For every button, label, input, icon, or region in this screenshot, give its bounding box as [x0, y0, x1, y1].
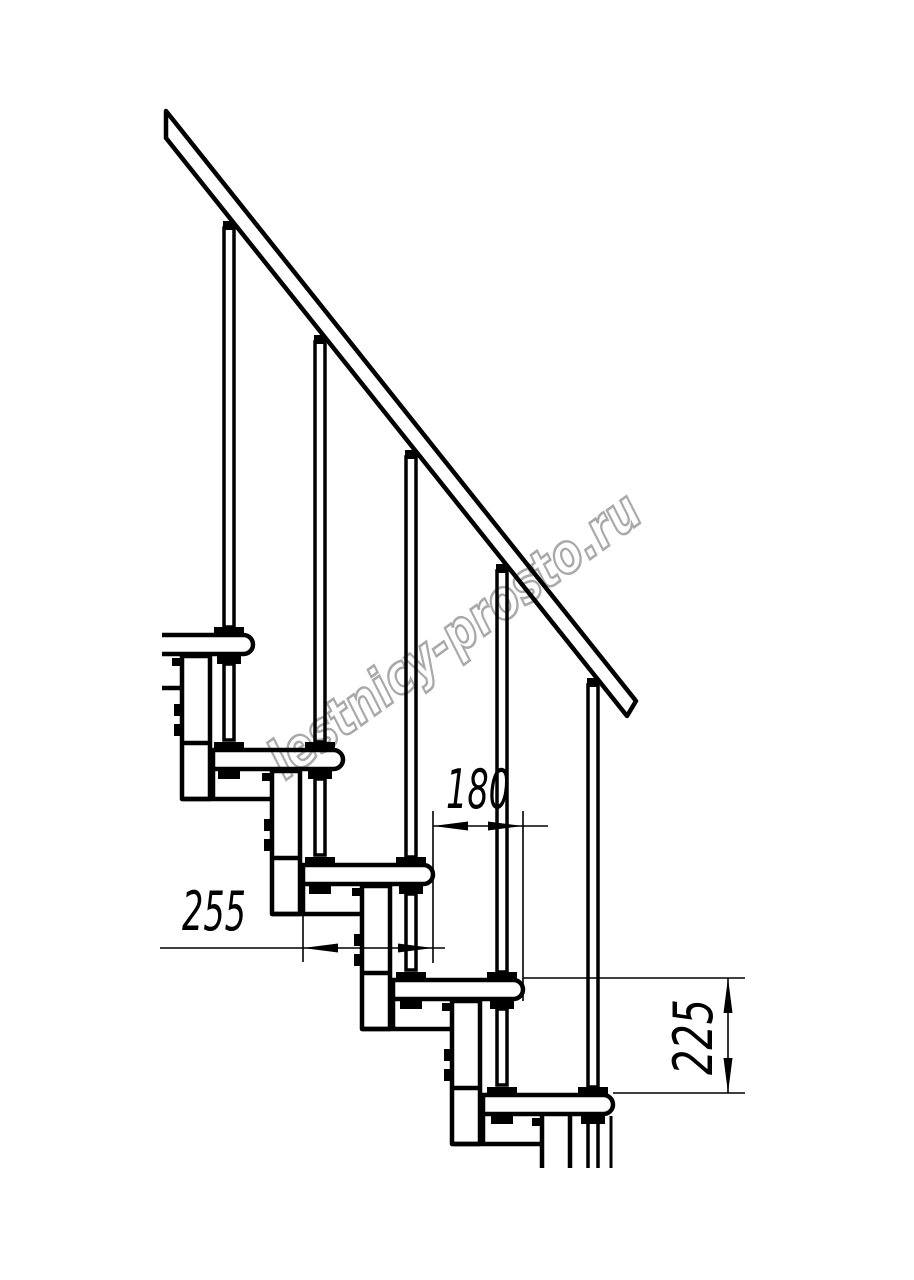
column2-side-bolt-b: [264, 839, 274, 851]
tread-1: [162, 635, 253, 654]
dim-run-arrow-left: [433, 822, 468, 831]
tread-5: [483, 1095, 613, 1114]
support-column-1: [182, 656, 210, 799]
baluster-2-lower: [315, 779, 325, 855]
baluster-4-lower: [497, 1009, 507, 1085]
baluster-5-rail-mount: [587, 678, 599, 687]
baluster-4-foot: [487, 972, 517, 980]
support-column-2: [272, 771, 300, 914]
dim-run-value: 180: [446, 758, 510, 821]
baluster-4-lower-foot: [487, 1087, 517, 1095]
staircase-technical-drawing: 180 255 225 lestnicy-prosto.ru: [0, 0, 914, 1280]
baluster-3-foot: [396, 857, 426, 865]
baluster-4-lower-connector: [490, 1001, 514, 1009]
staircase-drawing-page: 180 255 225 lestnicy-prosto.ru: [0, 0, 914, 1280]
dim-depth-arrow-left: [303, 944, 338, 953]
baluster-1-lower-connector: [217, 656, 241, 664]
baluster-1-lower: [224, 664, 234, 740]
column1-top-bolt: [172, 658, 184, 666]
dim-rise-value: 225: [662, 999, 725, 1075]
support-column-3: [362, 886, 390, 1029]
baluster-1-lower-foot: [214, 742, 244, 750]
baluster-5-upper: [588, 685, 598, 1087]
baluster-1-upper: [224, 228, 234, 627]
baluster-1-foot: [214, 627, 244, 635]
foot-nut-tread3: [309, 886, 331, 894]
column4-side-bolt-b: [444, 1069, 454, 1081]
column4-top-bolt: [442, 1003, 454, 1011]
column2-top-bolt: [262, 773, 274, 781]
baluster-3-rail-mount: [405, 450, 417, 459]
baluster-2-lower-foot: [305, 857, 335, 865]
column3-side-bolt-a: [354, 934, 364, 946]
dimension-rise-225: 225: [523, 978, 745, 1093]
baluster-2-upper: [315, 342, 325, 742]
baluster-1-rail-mount: [223, 221, 235, 230]
tread-3: [303, 865, 433, 884]
foot-nut-tread4: [400, 1001, 422, 1009]
tread-4: [393, 980, 523, 999]
handrail: [166, 111, 636, 716]
column2-side-bolt-a: [264, 819, 274, 831]
baluster-3-lower-connector: [399, 886, 423, 894]
baluster-5-lower-cut: [588, 1124, 598, 1168]
baluster-2-rail-mount: [314, 335, 326, 344]
baluster-3-lower-foot: [396, 972, 426, 980]
column1-side-bolt-a: [174, 704, 184, 716]
baluster-5-lower-connector: [581, 1116, 605, 1124]
foot-nut-tread5: [491, 1116, 513, 1124]
baluster-3-lower: [406, 894, 416, 970]
foot-nut-tread2: [218, 771, 240, 779]
column3-top-bolt: [352, 888, 364, 896]
column4-side-bolt-a: [444, 1049, 454, 1061]
baluster-5-foot: [578, 1087, 608, 1095]
column1-side-bolt-b: [174, 724, 184, 736]
support-column-4: [452, 1001, 480, 1144]
dimension-run-180: 180: [433, 758, 548, 1001]
column3-side-bolt-b: [354, 954, 364, 966]
column5-top-bolt: [532, 1118, 544, 1126]
support-column-5-cut: [542, 1116, 570, 1168]
dim-depth-value: 255: [182, 880, 246, 943]
